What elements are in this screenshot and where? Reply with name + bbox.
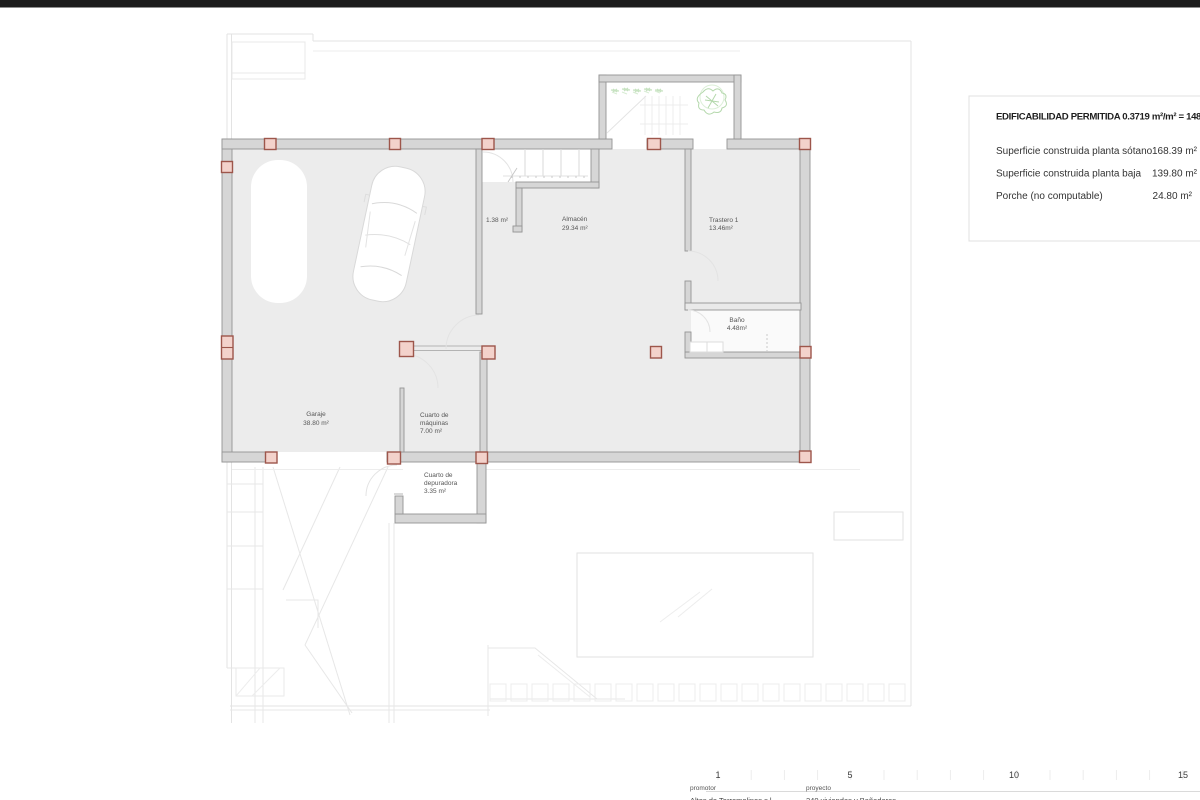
svg-text:5: 5 xyxy=(847,770,852,780)
svg-text:38.80 m²: 38.80 m² xyxy=(303,420,329,427)
svg-text:Garaje: Garaje xyxy=(306,411,326,418)
svg-text:Superficie construida planta b: Superficie construida planta baja xyxy=(996,169,1142,180)
svg-text:Baño: Baño xyxy=(729,317,745,324)
svg-text:Altos de Torremolinos s.l: Altos de Torremolinos s.l xyxy=(690,796,772,800)
svg-text:Porche (no computable): Porche (no computable) xyxy=(996,191,1103,202)
svg-text:240 viviendas y Bañaderas: 240 viviendas y Bañaderas xyxy=(806,796,896,800)
svg-text:3.35 m²: 3.35 m² xyxy=(424,488,447,495)
svg-text:depuradora: depuradora xyxy=(424,480,458,487)
svg-text:Superficie construida planta s: Superficie construida planta sótano xyxy=(996,146,1153,157)
svg-text:139.80 m²: 139.80 m² xyxy=(1152,169,1198,180)
svg-text:Trastero 1: Trastero 1 xyxy=(709,217,739,224)
svg-text:29.34 m²: 29.34 m² xyxy=(562,225,588,232)
svg-text:1.38 m²: 1.38 m² xyxy=(486,217,509,224)
svg-text:Cuarto de: Cuarto de xyxy=(424,472,453,479)
svg-text:13.46m²: 13.46m² xyxy=(709,225,734,232)
svg-text:10: 10 xyxy=(1009,770,1019,780)
svg-text:7.00 m²: 7.00 m² xyxy=(420,428,443,435)
svg-text:1: 1 xyxy=(715,770,720,780)
svg-text:168.39 m²: 168.39 m² xyxy=(1152,146,1198,157)
svg-text:4.48m²: 4.48m² xyxy=(727,325,748,332)
svg-text:máquinas: máquinas xyxy=(420,420,449,427)
svg-text:Almacén: Almacén xyxy=(562,216,588,223)
svg-text:Cuarto de: Cuarto de xyxy=(420,412,449,419)
svg-text:EDIFICABILIDAD PERMITIDA 0.371: EDIFICABILIDAD PERMITIDA 0.3719 m²/m² = … xyxy=(996,112,1200,123)
svg-text:15: 15 xyxy=(1178,770,1188,780)
svg-text:proyecto: proyecto xyxy=(806,785,831,792)
svg-text:24.80 m²: 24.80 m² xyxy=(1153,191,1193,202)
svg-text:promotor: promotor xyxy=(690,785,717,792)
